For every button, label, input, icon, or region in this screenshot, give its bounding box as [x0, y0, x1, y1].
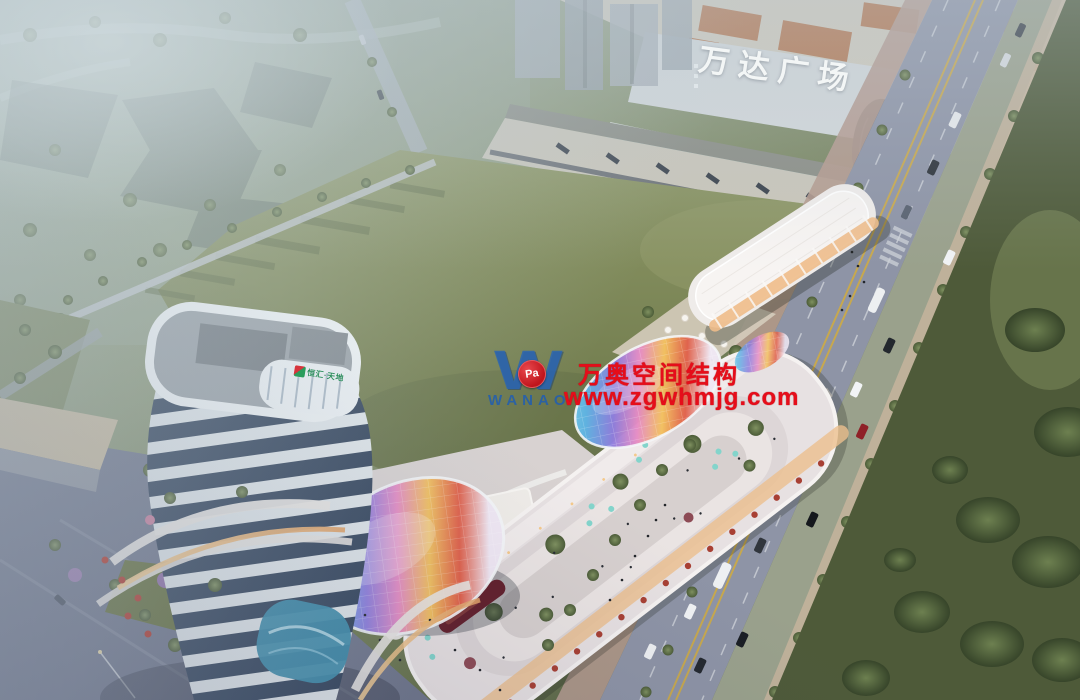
- watermark-url: www.zgwhmjg.com: [564, 384, 799, 412]
- tower-logo-icon: [293, 365, 306, 378]
- watermark: W Pa WANAO 万奥空间结构 www.zgwhmjg.com: [478, 344, 778, 422]
- architectural-aerial-rendering: 万达广场 恒汇·天地 W Pa WANAO 万奥空间结构 www.zgwhmjg…: [0, 0, 1080, 700]
- watermark-logo-text: WANAO: [488, 392, 571, 409]
